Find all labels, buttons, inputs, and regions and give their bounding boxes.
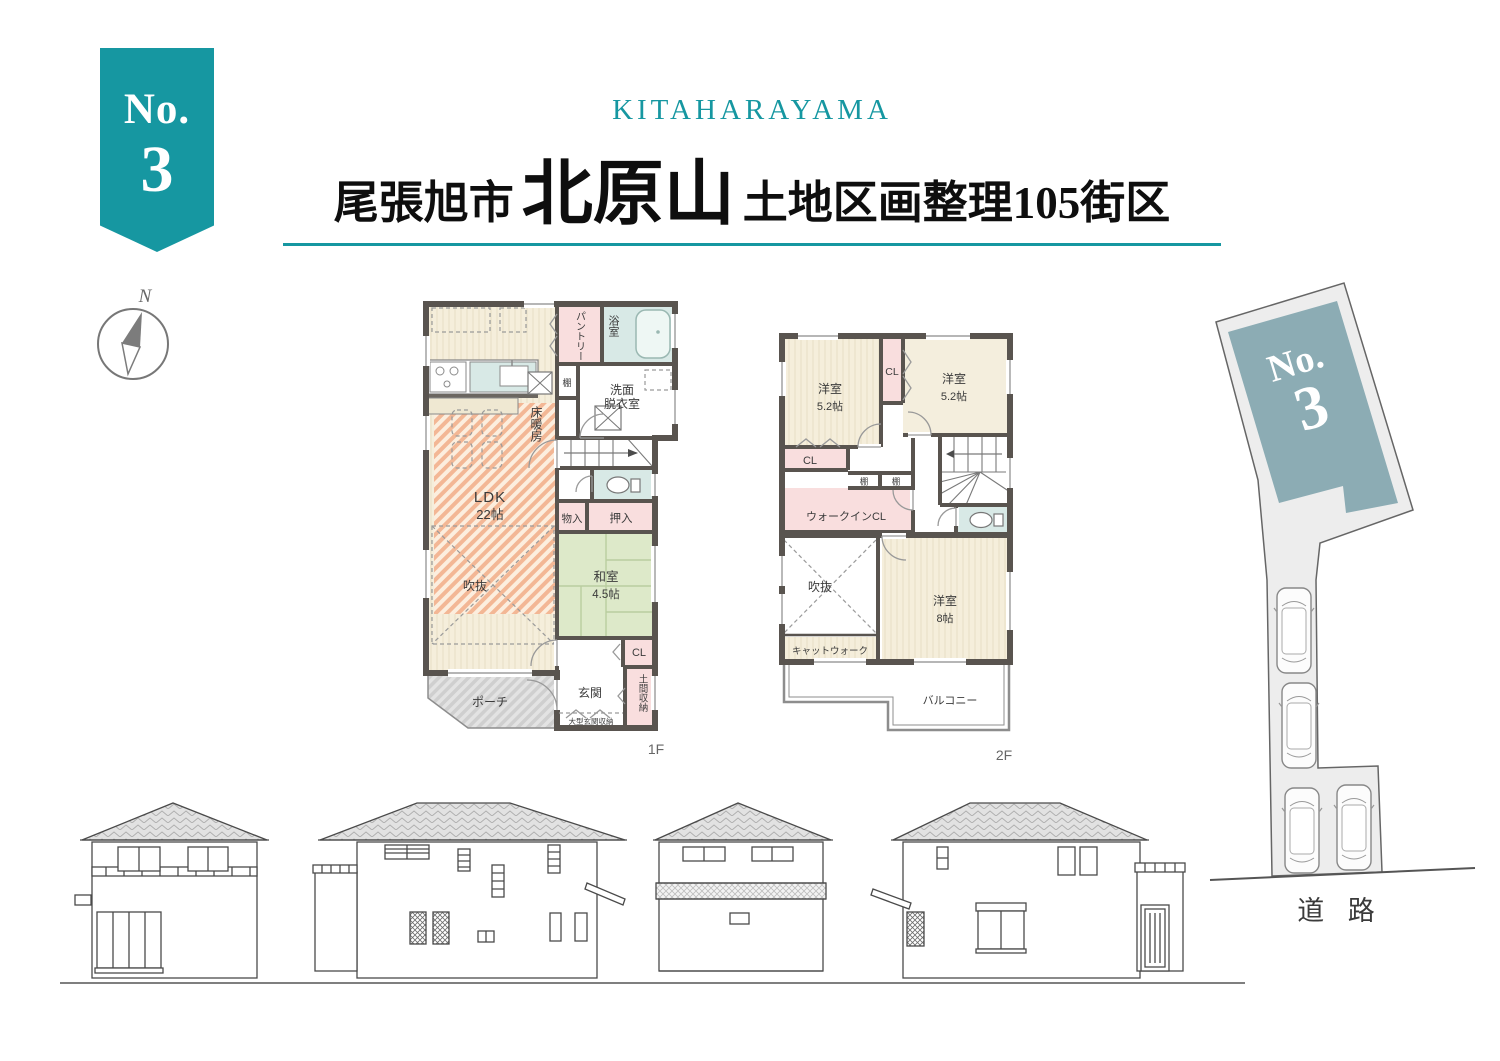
label-catwalk: キャットウォーク (792, 646, 868, 657)
car-icon (1279, 683, 1319, 768)
ribbon-no-label: No. (100, 88, 214, 131)
label-porch: ポーチ (472, 695, 508, 709)
label-void-1f: 吹抜 (463, 579, 487, 593)
label-cl-left: CL (803, 455, 817, 467)
label-room-a-size: 5.2帖 (817, 400, 843, 413)
label-mono: 物入 (562, 512, 583, 525)
elevation-3 (653, 803, 833, 971)
ribbon-number: 3 (100, 137, 214, 203)
flyer-page: No. 3 KITAHARAYAMA 尾張旭市北原山土地区画整理105街区 N (0, 0, 1500, 1061)
label-balcony: バルコニー (923, 694, 978, 707)
label-shelf: 棚 (562, 377, 571, 388)
label-heating: 床暖房 (529, 406, 543, 442)
label-shelf2: 棚 (892, 477, 901, 487)
elevations (60, 795, 1250, 995)
car-icon (1282, 788, 1322, 873)
bathtub-icon (636, 310, 670, 358)
label-void-2f: 吹抜 (808, 580, 832, 594)
floor-plan-2f: 洋室 5.2帖 CL 洋室 5.2帖 CL 棚 棚 ウォークインCL 吹抜 洋室… (778, 332, 1016, 764)
label-shelf1: 棚 (860, 477, 869, 487)
label-wash2: 脱衣室 (604, 396, 640, 411)
title-city: 尾張旭市 (334, 178, 514, 228)
label-ldk-size: 22帖 (476, 507, 503, 522)
floor-label-1f: 1F (648, 741, 664, 757)
label-bath: 浴室 (607, 315, 620, 337)
label-room-c: 洋室 (933, 593, 957, 608)
floor-label-2f: 2F (996, 747, 1012, 763)
label-washitsu: 和室 (593, 569, 618, 584)
label-room-b: 洋室 (942, 371, 966, 386)
title-name: 北原山 (514, 156, 743, 234)
car-icon (1274, 588, 1314, 673)
page-title: 尾張旭市北原山土地区画整理105街区 (283, 137, 1221, 239)
fridge-icon (528, 372, 552, 394)
toilet-icon-2f (970, 513, 1003, 528)
stairs-2f (940, 437, 1010, 505)
label-wash1: 洗面 (610, 383, 634, 397)
title-suffix: 土地区画整理105街区 (743, 178, 1171, 228)
page-header: KITAHARAYAMA 尾張旭市北原山土地区画整理105街区 (283, 94, 1221, 239)
elevation-2 (313, 803, 627, 978)
label-pantry: パントリー (574, 311, 586, 361)
elevation-1 (75, 803, 269, 978)
title-underline (283, 243, 1221, 246)
subtitle-en: KITAHARAYAMA (283, 94, 1221, 127)
label-genkan: 玄関 (578, 685, 602, 700)
label-oshiire: 押入 (610, 511, 633, 525)
label-wic: ウォークインCL (806, 510, 886, 523)
compass-icon: N (98, 282, 198, 392)
label-large-storage: 大型玄関収納 (569, 716, 614, 726)
floor-plan-1f: パントリー 浴室 棚 洗面 脱衣室 床暖房 LDK 22帖 吹抜 物入 押入 和… (420, 298, 680, 760)
elevation-4 (871, 803, 1185, 978)
road-label: 道 路 (1297, 896, 1383, 926)
stairs-arrow-2f (946, 450, 954, 458)
label-room-a: 洋室 (818, 381, 842, 396)
label-ldk: LDK (474, 489, 506, 506)
toilet-icon-1f (607, 477, 640, 493)
stove-icon (430, 362, 466, 392)
number-ribbon: No. 3 (100, 48, 214, 252)
label-room-b-size: 5.2帖 (941, 390, 967, 403)
label-room-c-size: 8帖 (936, 612, 953, 625)
label-cl-1f: CL (632, 647, 646, 659)
car-icon (1334, 785, 1374, 870)
label-doma: 土間収納 (637, 673, 649, 713)
label-cl-top: CL (885, 366, 899, 378)
label-washitsu-size: 4.5帖 (592, 587, 620, 601)
compass-north-label: N (138, 286, 153, 307)
